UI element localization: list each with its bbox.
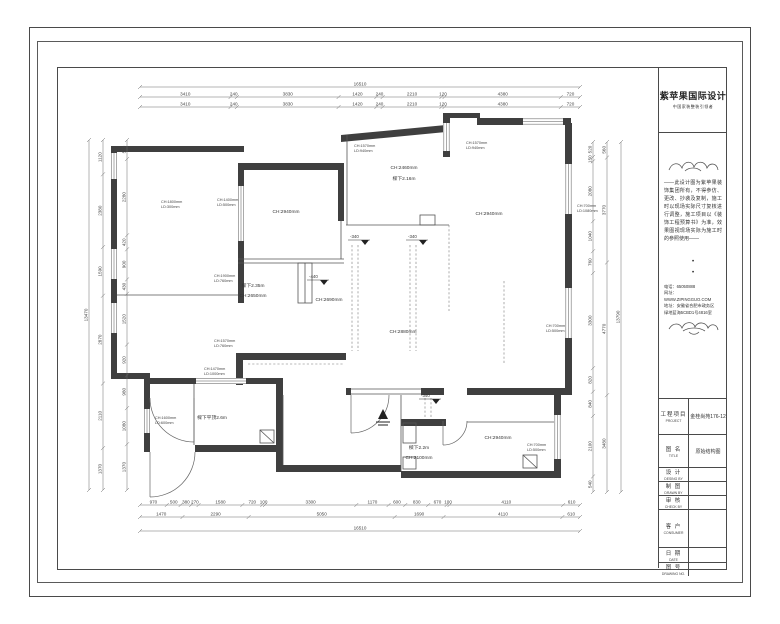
dimension-value: 2210 <box>407 92 418 97</box>
window-annotation: CH:1470mm <box>204 367 225 371</box>
title-row-label: 工程项目PROJECT <box>659 399 689 434</box>
dimension-value: 240 <box>230 102 238 107</box>
dimension-value: 2290 <box>210 512 221 517</box>
label-zh: 设 计 <box>666 468 682 476</box>
dimension-value: 980 <box>122 387 127 395</box>
room-label: CH:2100mm <box>406 455 433 461</box>
window-annotation: LD:940mm <box>466 146 485 150</box>
window-annotation: CH:1800mm <box>161 200 182 204</box>
title-row-label: 制 图DRAWN BY <box>659 482 689 495</box>
title-row-label: 日 期DATE <box>659 548 689 562</box>
dimension-value: 570 <box>122 145 127 153</box>
title-row-value <box>689 510 727 547</box>
dimension-value: 760 <box>588 258 593 266</box>
room-label: CH:2880mm <box>390 329 417 335</box>
dimension-value: 2380 <box>98 205 103 216</box>
label-zh: 工程项目 <box>660 410 686 418</box>
dimension-value: 1470 <box>156 512 167 517</box>
room-label: 樑下平顶2.6m <box>197 414 227 421</box>
dimension-value: 13470 <box>84 308 89 321</box>
brand-name: 紫苹果国际设计 <box>660 89 727 102</box>
walls <box>111 113 572 478</box>
dimension-value: 13790 <box>616 310 621 323</box>
window-annotations: CH:1800mmLD:300mmCH:1400mmLD:500mmCH:157… <box>155 141 598 452</box>
dimension-value: 520 <box>588 145 593 153</box>
window-annotation: LD:600mm <box>155 421 174 425</box>
window-annotation: CH:1570mm <box>214 339 235 343</box>
cloud-ornament-icon <box>665 319 721 335</box>
dimension-value: 1420 <box>352 102 363 107</box>
label-en: DATE <box>669 558 678 562</box>
dimension-value: 120 <box>439 102 447 107</box>
title-row-label: 设 计DESING BY <box>659 468 689 481</box>
dimension-value: 3830 <box>283 92 294 97</box>
title-row-label: 审 核CHECK BY <box>659 496 689 509</box>
title-row-value <box>689 548 727 562</box>
dimension-value: 720 <box>248 500 256 505</box>
label-en: CONSUMER <box>664 531 684 535</box>
window-annotation: CH:1900mm <box>214 274 235 278</box>
contact-address-line2: 绿地蓝海5CBD1号4816室 <box>664 310 723 317</box>
window-annotation: LD:760mm <box>214 279 233 283</box>
dimension-value: 2100 <box>588 441 593 452</box>
dimension-value: 3480 <box>602 438 607 449</box>
dimension-value: 1520 <box>122 314 127 325</box>
dimension-value: 16510 <box>354 82 367 87</box>
dimension-value: 720 <box>567 102 575 107</box>
dimension-value: 970 <box>150 500 158 505</box>
dimension-value: 4110 <box>498 512 508 517</box>
label-zh: 制 图 <box>666 482 682 490</box>
dimension-value: 4380 <box>498 92 509 97</box>
dimension-value: 3770 <box>602 204 607 215</box>
dimension-value: 920 <box>122 356 127 364</box>
label-en: DRAWING NO. <box>662 572 685 576</box>
window-annotation: LD:940mm <box>354 149 373 153</box>
window-annotation: CH:1570mm <box>354 144 375 148</box>
dimension-value: 3410 <box>180 102 191 107</box>
dimension-value: 100 <box>260 500 268 505</box>
disclaimer-text: ——此设计图为紫苹果装饰集团所有，不得参仿、更改、抄袭及复制，施工时以现场实际尺… <box>659 174 727 243</box>
title-row-project: 工程项目PROJECT金桂尚苑176-12 <box>659 398 727 434</box>
window-annotation: CH:1570mm <box>466 141 487 145</box>
dimension-value: 240 <box>376 102 384 107</box>
window-annotation: LD:300mm <box>161 205 180 209</box>
dimension-value: 380 <box>182 500 190 505</box>
level-marker: -340 <box>408 234 417 239</box>
window-annotation: CH:1400mm <box>217 198 238 202</box>
separator-dot-icon: • <box>659 268 727 279</box>
room-label: CH:2690mm <box>316 297 343 303</box>
room-label: CH:2940mm <box>485 435 512 441</box>
dimension-value: 2080 <box>588 186 593 197</box>
label-en: PROJECT <box>666 419 682 423</box>
dimension-value: 1580 <box>215 500 226 505</box>
contact-address-line1: 地址：安徽省合肥市政务区 <box>664 303 723 310</box>
dimension-value: 1420 <box>352 92 363 97</box>
dimension-value: 610 <box>568 500 576 505</box>
window-annotation: CH:700mm <box>527 443 546 447</box>
title-row-label: 图 名TITLE <box>659 435 689 467</box>
window-annotation: CH:700mm <box>577 204 596 208</box>
interior-partitions <box>117 135 554 471</box>
window-annotation: LD:500mm <box>546 329 565 333</box>
level-marker: -440 <box>309 274 318 279</box>
title-row-consumer: 客 户CONSUMER <box>659 509 727 547</box>
dimension-value: 830 <box>413 500 421 505</box>
window-annotation: LD:1000mm <box>204 372 225 376</box>
dimension-value: 1040 <box>588 231 593 242</box>
dimension-value: 1590 <box>98 266 103 277</box>
label-zh: 日 期 <box>666 549 682 557</box>
dimension-value: 1120 <box>98 152 103 162</box>
contact-block: 电话：65050888 网址：WWW.ZIPINGGUO.COM 地址：安徽省合… <box>659 280 727 317</box>
title-row-drawn-by: 制 图DRAWN BY <box>659 481 727 495</box>
dimension-value: 270 <box>191 500 199 505</box>
room-label: 樑下2.16m <box>393 175 416 182</box>
room-label: CH:2940mm <box>273 209 300 215</box>
label-zh: 图 名 <box>666 445 682 453</box>
dimension-value: 2110 <box>98 410 103 420</box>
separator-dot-icon: • <box>659 257 727 268</box>
contact-web: 网址：WWW.ZIPINGGUO.COM <box>664 290 723 303</box>
dimension-value: 560 <box>602 146 607 154</box>
room-label: 樑下2.2m <box>409 444 429 451</box>
title-table: 工程项目PROJECT金桂尚苑176-12图 名TITLE原始结构图设 计DES… <box>659 398 727 568</box>
title-row-value <box>689 496 727 509</box>
title-row-date: 日 期DATE <box>659 547 727 562</box>
window-annotation: LD:500mm <box>527 448 546 452</box>
room-label: 樑下2.35m <box>242 282 265 289</box>
dimension-value: 600 <box>393 500 401 505</box>
title-row-value: 金桂尚苑176-12 <box>689 399 727 434</box>
brand-tagline: 中国家装整装引领者 <box>673 104 714 110</box>
level-marker: -340 <box>350 234 359 239</box>
entry-door-mark <box>376 409 390 425</box>
title-row-title: 图 名TITLE原始结构图 <box>659 434 727 467</box>
dimension-value: 3410 <box>180 92 191 97</box>
brand-block: 紫苹果国际设计 中国家装整装引领者 <box>659 67 727 133</box>
title-row-design-by: 设 计DESING BY <box>659 467 727 481</box>
title-block: 紫苹果国际设计 中国家装整装引领者 ——此设计图为紫苹果装饰集团所有，不得参仿、… <box>658 67 727 568</box>
dimension-value: 420 <box>122 238 127 246</box>
label-en: TITLE <box>669 454 678 458</box>
title-row-check-by: 审 核CHECK BY <box>659 495 727 509</box>
dimension-value: 610 <box>567 512 575 517</box>
window-annotation: LD:760mm <box>214 344 233 348</box>
level-markers: -340-340-340-440 <box>307 234 441 404</box>
label-zh: 审 核 <box>666 496 682 504</box>
dimension-value: 1170 <box>367 500 377 505</box>
room-label: CH:2650mm <box>240 293 267 299</box>
dimension-value: 1370 <box>98 463 103 474</box>
dimension-value: 5050 <box>317 512 328 517</box>
window-annotation: LD:1080mm <box>577 209 598 213</box>
dimension-value: 1370 <box>122 462 127 473</box>
notes-block: ——此设计图为紫苹果装饰集团所有，不得参仿、更改、抄袭及复制，施工时以现场实际尺… <box>659 132 727 398</box>
dimension-value: 4110 <box>501 500 511 505</box>
title-row-value: 原始结构图 <box>689 435 727 467</box>
dimension-value: 2870 <box>98 334 103 345</box>
dimension-value: 4770 <box>602 323 607 334</box>
room-label: CH:2460mm <box>391 165 418 171</box>
room-labels: CH:2940mmCH:2460mm樑下2.16mCH:2940mmCH:288… <box>197 165 511 461</box>
dimension-value: 3300 <box>588 315 593 326</box>
dimension-value: 1080 <box>122 421 127 432</box>
cloud-ornament-icon <box>665 158 721 174</box>
dimension-value: 3300 <box>306 500 317 505</box>
dimension-value: 2280 <box>122 192 127 203</box>
window-annotation: CH:700mm <box>546 324 565 328</box>
dimension-value: 820 <box>588 376 593 384</box>
level-marker: -340 <box>421 393 430 398</box>
dimension-value: 840 <box>588 400 593 408</box>
window-annotation: LD:500mm <box>217 203 236 207</box>
dimension-value: 2210 <box>407 102 418 107</box>
dimension-value: 240 <box>376 92 384 97</box>
dimension-value: 1690 <box>414 512 425 517</box>
dimension-value: 100 <box>444 500 452 505</box>
label-zh: 客 户 <box>666 522 682 530</box>
separator-dots: • • <box>659 257 727 280</box>
title-row-value <box>689 468 727 481</box>
title-row-label: 客 户CONSUMER <box>659 510 689 547</box>
title-row-value <box>689 563 727 576</box>
dimension-value: 900 <box>122 260 127 268</box>
dimension-value: 670 <box>434 500 442 505</box>
dimension-value: 500 <box>170 500 178 505</box>
dimension-value: 150 <box>588 155 593 163</box>
label-zh: 图 号 <box>666 563 682 571</box>
title-row-drawing-no: 图 号DRAWING NO. <box>659 562 727 576</box>
dimension-value: 16510 <box>354 526 367 531</box>
dimension-value: 240 <box>230 92 238 97</box>
window-annotation: CH:1600mm <box>155 416 176 420</box>
dimension-value: 720 <box>567 92 575 97</box>
dimension-value: 4380 <box>498 102 509 107</box>
dimension-value: 540 <box>588 480 593 488</box>
dimension-value: 3830 <box>283 102 294 107</box>
floor-plan: 1651034102403830142024022101204380720341… <box>57 67 658 568</box>
title-row-value <box>689 482 727 495</box>
dimension-value: 430 <box>122 282 127 290</box>
room-label: CH:2940mm <box>476 211 503 217</box>
title-row-label: 图 号DRAWING NO. <box>659 563 689 576</box>
dimension-value: 120 <box>439 92 447 97</box>
drawing-sheet: { "brand": {"name": "紫苹果国际设计", "tagline"… <box>0 0 780 624</box>
